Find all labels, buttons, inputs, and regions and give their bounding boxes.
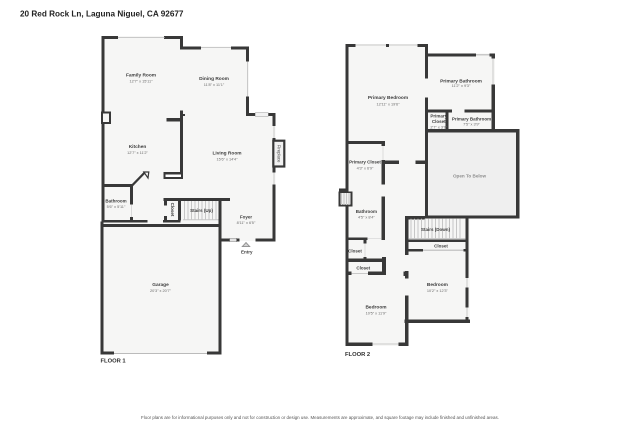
svg-text:12'7" x 11'2": 12'7" x 11'2"	[127, 151, 148, 155]
svg-text:20 Red Rock Ln, Laguna Niguel,: 20 Red Rock Ln, Laguna Niguel, CA 92677	[20, 10, 184, 19]
svg-text:Bathroom: Bathroom	[105, 199, 126, 204]
svg-text:11'2" x 9'3": 11'2" x 9'3"	[452, 84, 471, 88]
svg-text:Closet: Closet	[348, 249, 362, 254]
svg-text:2'7" x 3'9": 2'7" x 3'9"	[430, 125, 447, 129]
svg-text:FLOOR 2: FLOOR 2	[345, 352, 370, 358]
svg-text:Garage: Garage	[152, 282, 169, 288]
svg-text:Closet: Closet	[170, 203, 175, 217]
svg-text:Bedroom: Bedroom	[365, 305, 386, 311]
svg-text:4'5" x 8'4": 4'5" x 8'4"	[358, 216, 375, 220]
svg-text:Floor plans are for informatio: Floor plans are for informational purpos…	[141, 415, 499, 420]
svg-text:8'11" x 6'5": 8'11" x 6'5"	[237, 221, 256, 225]
svg-text:Kitchen: Kitchen	[129, 144, 147, 150]
svg-text:Entry: Entry	[241, 250, 253, 255]
svg-text:Dining Room: Dining Room	[199, 76, 229, 82]
svg-text:5'6" x 5'11": 5'6" x 5'11"	[107, 205, 126, 209]
svg-text:12'11" x 19'6": 12'11" x 19'6"	[377, 103, 401, 107]
svg-text:Bathroom: Bathroom	[356, 209, 377, 214]
svg-text:Foyer: Foyer	[240, 215, 253, 220]
svg-text:20'3" x 20'7": 20'3" x 20'7"	[150, 289, 172, 293]
svg-text:Closet: Closet	[356, 266, 370, 271]
svg-text:Closet: Closet	[434, 244, 448, 249]
svg-text:Stairs (Down): Stairs (Down)	[421, 227, 451, 232]
svg-text:10'2" x 12'3": 10'2" x 12'3"	[427, 289, 449, 293]
svg-text:10'5" x 11'9": 10'5" x 11'9"	[366, 312, 387, 316]
svg-text:Primary Bedroom: Primary Bedroom	[368, 95, 408, 101]
svg-text:Stairs (Up): Stairs (Up)	[190, 208, 213, 213]
svg-text:Living Room: Living Room	[212, 151, 241, 157]
svg-text:Family Room: Family Room	[126, 72, 156, 78]
svg-text:FLOOR 1: FLOOR 1	[101, 359, 127, 365]
svg-text:12'7" x 15'11": 12'7" x 15'11"	[130, 79, 154, 83]
svg-text:Open To Below: Open To Below	[453, 174, 487, 179]
svg-text:11'8" x 11'1": 11'8" x 11'1"	[204, 83, 225, 87]
svg-text:Fireplace: Fireplace	[276, 145, 281, 163]
svg-text:Primary Closet: Primary Closet	[349, 160, 381, 165]
svg-text:Bedroom: Bedroom	[427, 282, 448, 288]
svg-text:7'5" x 3'9": 7'5" x 3'9"	[463, 122, 480, 126]
svg-text:Primary Bathroom: Primary Bathroom	[452, 117, 491, 122]
svg-text:4'3" x 6'9": 4'3" x 6'9"	[357, 167, 374, 171]
svg-text:Primary: Primary	[430, 114, 447, 119]
svg-text:15'6" x 14'4": 15'6" x 14'4"	[216, 158, 238, 162]
svg-text:Closet: Closet	[432, 119, 446, 124]
